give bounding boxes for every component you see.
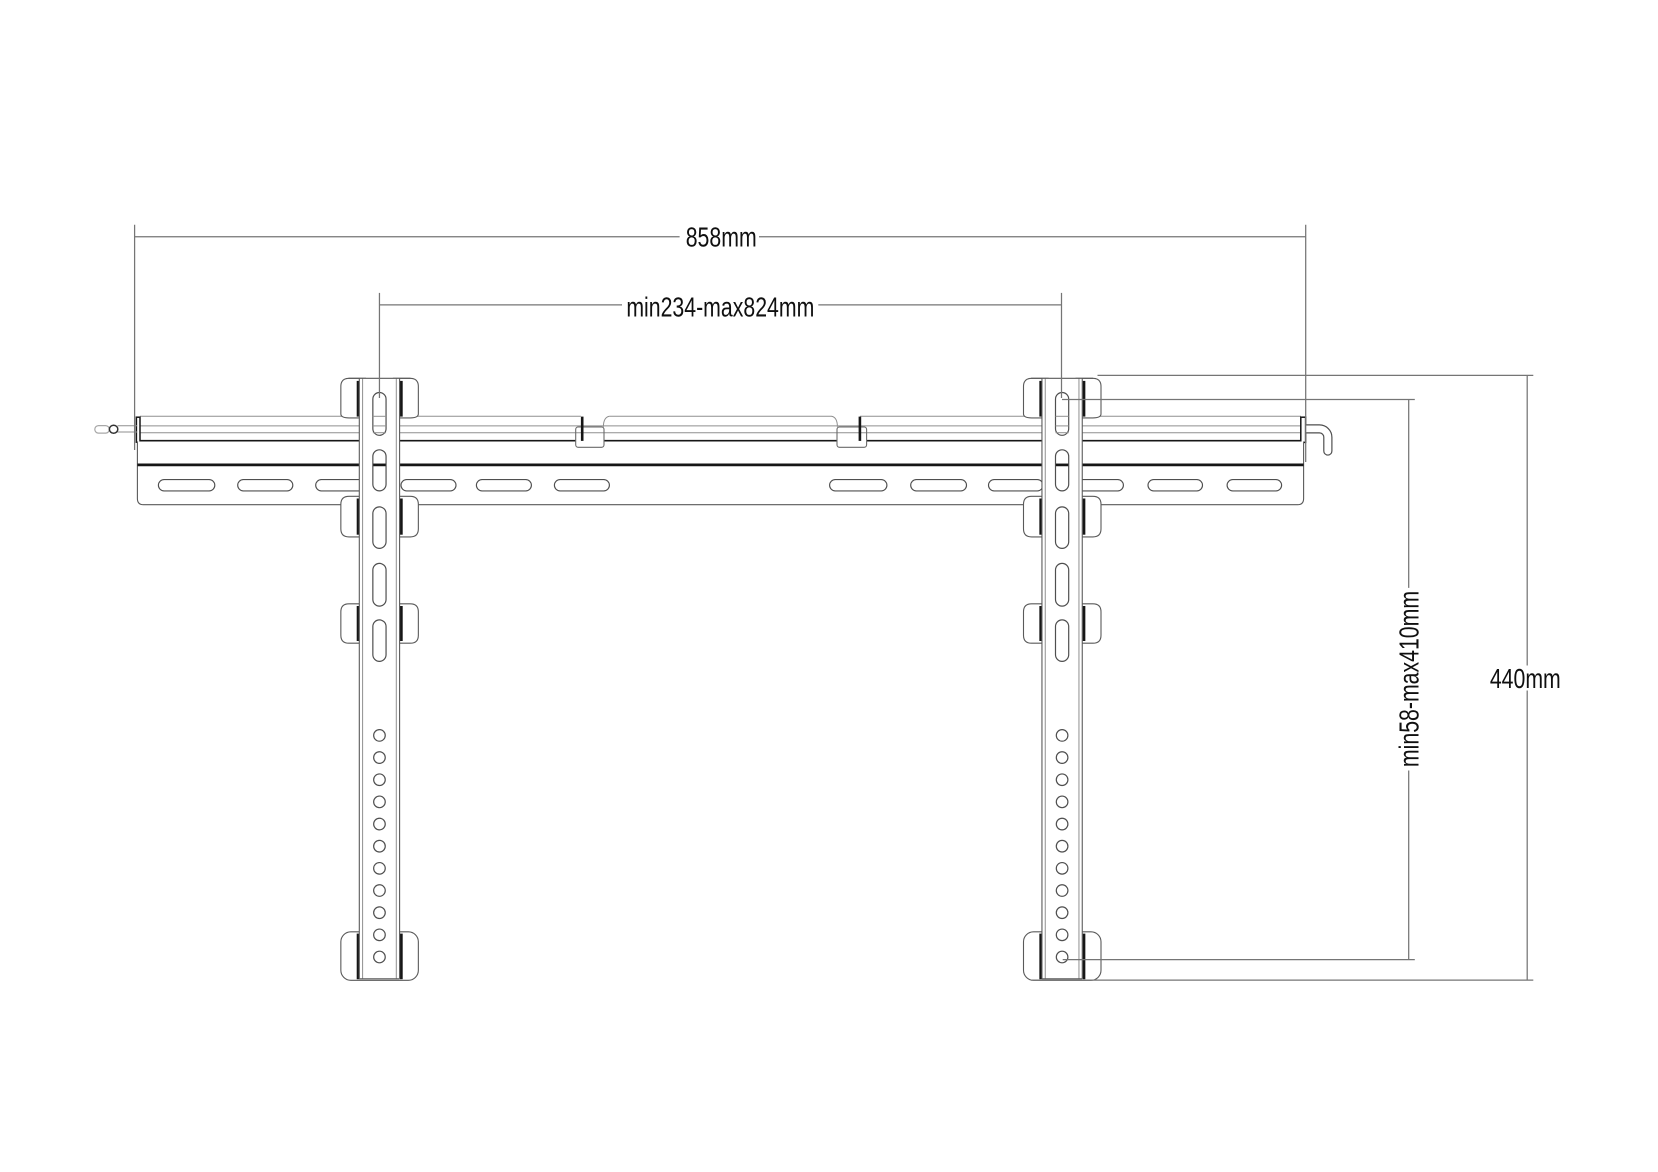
- svg-text:min234-max824mm: min234-max824mm: [626, 292, 814, 324]
- svg-text:440mm: 440mm: [1490, 663, 1561, 695]
- svg-text:858mm: 858mm: [686, 222, 757, 254]
- svg-text:min58-max410mm: min58-max410mm: [1394, 591, 1426, 767]
